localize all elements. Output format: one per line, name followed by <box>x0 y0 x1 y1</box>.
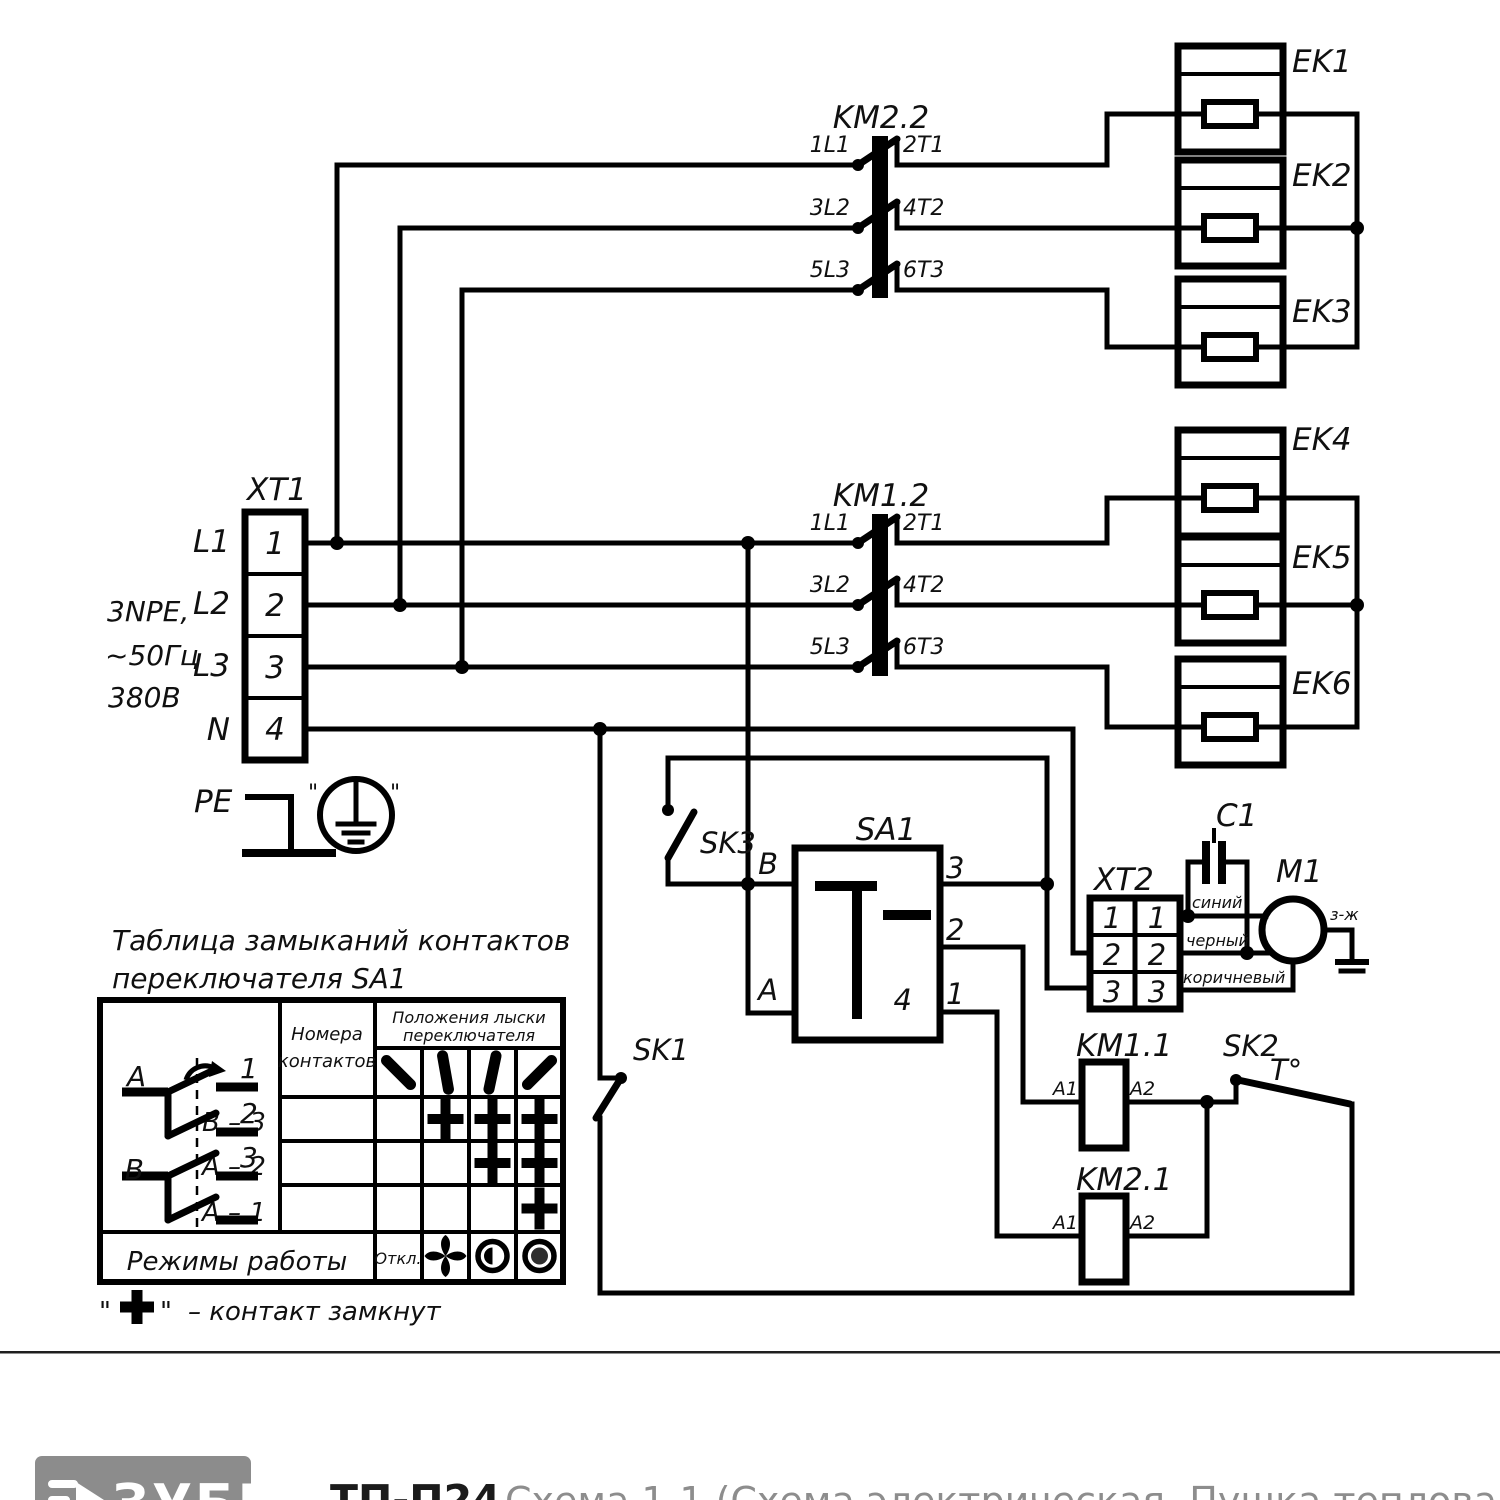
closed-contact-crosses <box>428 1098 558 1230</box>
km22-contact-dot <box>852 284 864 296</box>
diagram-blades <box>168 1069 216 1220</box>
legend-plus-icon <box>120 1290 154 1324</box>
heater-ek6: EK6 <box>1178 659 1352 765</box>
wire-label-l2: L2 <box>193 586 230 622</box>
sa1-label: SA1 <box>856 812 917 848</box>
ek6-element-icon <box>1204 715 1256 739</box>
sa1-pin-4: 4 <box>894 983 912 1017</box>
diagram-a-label: A <box>125 1060 146 1093</box>
knob-position-mark <box>489 1056 496 1089</box>
c1-label: C1 <box>1216 798 1257 834</box>
km22-3l2: 3L2 <box>810 196 850 221</box>
supply-label-3: 380В <box>108 681 181 714</box>
contactor-km22: KM2.2 1L1 2T1 3L2 4T2 5L3 6T3 <box>810 100 945 298</box>
pe-label: PE <box>194 784 233 820</box>
sa1-input-b: B <box>758 847 778 881</box>
closed-contact-cross <box>475 1098 511 1140</box>
sk3-label: SK3 <box>700 826 756 860</box>
diagram-arrow-icon <box>209 1061 226 1077</box>
m1-label: M1 <box>1276 854 1322 890</box>
xt1-label: XT1 <box>245 472 307 508</box>
ek4-label: EK4 <box>1292 422 1352 458</box>
motor-m1: M1 з-ж синий черный коричневый <box>1183 854 1369 987</box>
sa1-pin-2: 2 <box>946 913 964 947</box>
legend-quote-left: " <box>99 1297 111 1327</box>
sk1-blade <box>596 1078 621 1118</box>
supply-label-2: ~50Гц <box>105 639 199 672</box>
pe-ground: PE " " <box>194 779 400 853</box>
km12-2t1: 2T1 <box>903 511 944 536</box>
km22-4t2: 4T2 <box>903 196 944 221</box>
closed-contact-cross <box>522 1188 558 1230</box>
switch-sk2: SK2 T° <box>1223 1029 1350 1104</box>
heater-ek5: EK5 <box>1178 537 1352 643</box>
km22-contact-dot <box>852 222 864 234</box>
ek5-element-icon <box>1204 593 1256 617</box>
xt2-r2: 2 <box>1148 938 1166 972</box>
wire-color-black: черный <box>1186 931 1249 950</box>
table-head-contacts2: контактов <box>278 1051 376 1072</box>
km12-1l1: 1L1 <box>810 511 850 536</box>
ek6-label: EK6 <box>1292 666 1352 702</box>
diagram-b-label: B <box>125 1153 144 1186</box>
table-legend: " " – контакт замкнут <box>99 1290 442 1327</box>
capacitor-c1: C1 <box>1206 798 1257 880</box>
footer: ЗУБР ТП-П24. Схема 1-1 (Схема электричес… <box>0 1351 1500 1500</box>
m1-ground-wire-label: з-ж <box>1330 905 1359 924</box>
km12-contact-dot <box>852 661 864 673</box>
xt2-r3: 3 <box>1148 975 1166 1009</box>
pe-bracket <box>245 797 291 853</box>
km12-contact-dot <box>852 599 864 611</box>
closed-contact-cross <box>522 1098 558 1140</box>
km12-5l3: 5L3 <box>810 635 850 660</box>
legend-text: – контакт замкнут <box>188 1297 442 1327</box>
wire-l1-to-km22 <box>337 165 858 543</box>
sa1-pin-1: 1 <box>946 977 964 1011</box>
full-heat-mode-icon <box>525 1242 554 1271</box>
km11-coil-box <box>1082 1062 1126 1148</box>
ek2-label: EK2 <box>1292 158 1352 194</box>
coil-km21: KM2.1 A1 A2 <box>1051 1162 1172 1282</box>
wire-label-l1: L1 <box>193 524 230 560</box>
closed-contact-cross <box>475 1142 511 1184</box>
wire-color-brown: коричневый <box>1183 968 1285 987</box>
ek1-label: EK1 <box>1292 44 1352 80</box>
ek4-element-icon <box>1204 486 1256 510</box>
table-head-positions1: Положения лыски <box>392 1008 545 1027</box>
xt2-label: XT2 <box>1092 862 1154 898</box>
xt2-r1: 1 <box>1148 901 1166 935</box>
table-head-positions2: переключателя <box>403 1026 535 1045</box>
xt1-terminal-1: 1 <box>265 526 285 562</box>
wire-sa1-pin1-km21 <box>940 1012 1082 1236</box>
wire-6t3-to-ek3 <box>897 290 1204 347</box>
switch-sa1: SA1 B A 3 2 1 4 <box>756 812 964 1040</box>
legend-quote-right: " <box>160 1297 172 1327</box>
wire-motor-ground <box>1324 930 1352 962</box>
knob-position-mark <box>527 1060 551 1084</box>
km22-6t3: 6T3 <box>903 258 944 283</box>
km21-a1: A1 <box>1051 1212 1078 1234</box>
km21-coil-box <box>1082 1196 1126 1282</box>
terminal-block-xt2: XT2 1 2 3 1 2 3 <box>1090 862 1180 1009</box>
page: XT1 1 2 3 4 L1 L2 L3 N 3NPE, ~50Гц 380В … <box>0 0 1500 1500</box>
table-title-line1: Таблица замыканий контактов <box>112 924 570 957</box>
sk3-blade <box>668 812 694 858</box>
closed-contact-cross <box>428 1098 464 1140</box>
km22-2t1: 2T1 <box>903 133 944 158</box>
table-head-contacts1: Номера <box>291 1024 363 1045</box>
km12-contact-dot <box>852 537 864 549</box>
km11-a1: A1 <box>1051 1078 1078 1100</box>
km11-a2: A2 <box>1128 1078 1155 1100</box>
wire-l3-to-km22 <box>462 290 858 667</box>
ek5-label: EK5 <box>1292 540 1352 576</box>
ek1-element-icon <box>1204 102 1256 126</box>
footer-separator <box>0 1351 1500 1354</box>
sa1-box <box>795 848 940 1040</box>
table-modes-label: Режимы работы <box>127 1247 347 1277</box>
knob-position-mark <box>386 1060 410 1084</box>
sa1-contact-table: Таблица замыканий контактов переключател… <box>99 924 570 1327</box>
km22-5l3: 5L3 <box>810 258 850 283</box>
half-heat-mode-icon <box>478 1242 507 1271</box>
knob-position-mark <box>443 1056 449 1089</box>
xt2-l2: 2 <box>1103 938 1121 972</box>
km12-4t2: 4T2 <box>903 573 944 598</box>
diagram-t1-label: 1 <box>240 1052 258 1085</box>
coil-km11: KM1.1 A1 A2 <box>1051 1028 1172 1148</box>
table-mode-off: Откл. <box>375 1249 422 1268</box>
km22-contact-dot <box>852 159 864 171</box>
heater-ek3: EK3 <box>1178 279 1352 385</box>
brand-name: ЗУБР <box>112 1474 279 1500</box>
km21-label: KM2.1 <box>1076 1162 1172 1198</box>
terminal-block-xt1: XT1 1 2 3 4 L1 L2 L3 N 3NPE, ~50Гц 380В <box>105 472 307 760</box>
footer-model: ТП-П24. <box>330 1476 516 1500</box>
c1-plates-icon <box>1206 845 1222 880</box>
heater-ek1: EK1 <box>1178 44 1352 152</box>
km11-label: KM1.1 <box>1076 1028 1172 1064</box>
heater-ek2: EK2 <box>1178 158 1352 266</box>
wire-color-blue: синий <box>1192 893 1242 912</box>
contactor-km12: KM1.2 1L1 2T1 3L2 4T2 5L3 6T3 <box>810 478 945 676</box>
fan-mode-icon <box>425 1235 467 1277</box>
xt1-terminal-2: 2 <box>265 588 285 624</box>
m1-circle-icon <box>1262 899 1324 961</box>
table-title-line2: переключателя SA1 <box>112 962 407 995</box>
supply-label-1: 3NPE, <box>107 595 189 628</box>
footer-caption: Схема 1-1 (Схема электрическая. Пушка те… <box>505 1479 1500 1500</box>
sk2-temp-label: T° <box>1270 1053 1302 1087</box>
ek2-element-icon <box>1204 216 1256 240</box>
closed-contact-cross <box>522 1142 558 1184</box>
wire-6t3-to-ek6 <box>897 667 1204 727</box>
km12-label: KM1.2 <box>833 478 929 514</box>
km12-3l2: 3L2 <box>810 573 850 598</box>
diagram-t3-label: 3 <box>240 1141 258 1174</box>
km22-1l1: 1L1 <box>810 133 850 158</box>
wire-n-to-xt2 <box>305 729 1090 953</box>
km21-a2: A2 <box>1128 1212 1155 1234</box>
ek3-element-icon <box>1204 335 1256 359</box>
xt1-terminal-3: 3 <box>265 650 285 686</box>
ek3-label: EK3 <box>1292 294 1352 330</box>
switch-sk3: SK3 <box>662 758 756 884</box>
sk1-label: SK1 <box>633 1033 689 1067</box>
sk3-contact-dot <box>662 804 674 816</box>
sa1-pin-3: 3 <box>946 851 964 885</box>
wire-bottom-loop <box>600 1104 1352 1293</box>
diagram-t2-label: 2 <box>240 1097 258 1130</box>
wire-label-n: N <box>207 712 230 748</box>
electrical-schematic: XT1 1 2 3 4 L1 L2 L3 N 3NPE, ~50Гц 380В … <box>0 0 1500 1500</box>
earth-symbol-icon <box>338 781 374 842</box>
km22-label: KM2.2 <box>833 100 929 136</box>
km12-6t3: 6T3 <box>903 635 944 660</box>
sa1-input-a: A <box>756 973 778 1007</box>
pe-quote-left: " <box>308 781 318 806</box>
heater-ek4: EK4 <box>1178 422 1352 536</box>
xt2-l3: 3 <box>1103 975 1121 1009</box>
xt1-terminal-4: 4 <box>265 712 285 748</box>
xt2-l1: 1 <box>1103 901 1121 935</box>
wire-l2-to-km22 <box>400 228 858 605</box>
pe-quote-right: " <box>390 781 400 806</box>
wire-sk3-to-xt2 <box>668 758 1090 988</box>
